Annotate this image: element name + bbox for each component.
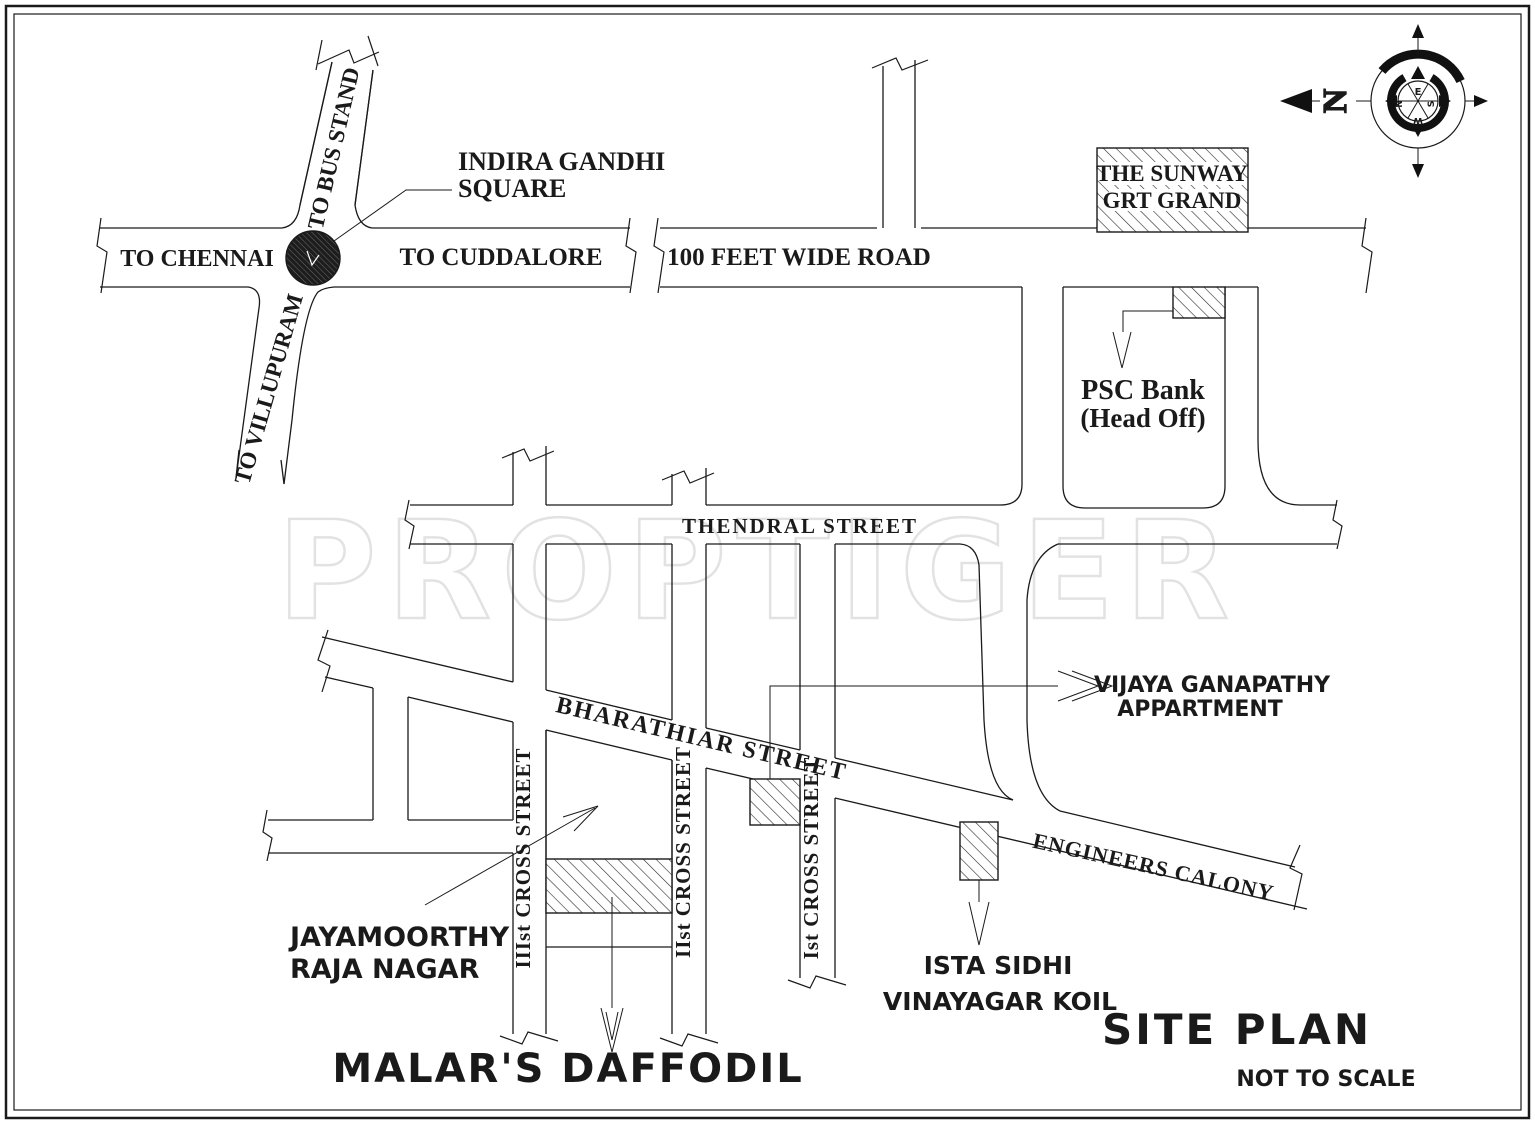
title-block: SITE PLAN NOT TO SCALE	[1102, 1005, 1416, 1092]
road-break-icon	[1290, 845, 1302, 910]
label-thendral-street: THENDRAL STREET	[682, 514, 918, 538]
road-break-icon	[1362, 218, 1372, 293]
vijaya-marker	[750, 779, 800, 825]
compass-north-letter: N	[1317, 88, 1354, 113]
label-to-chennai: TO CHENNAI	[120, 246, 274, 272]
road-break-icon	[318, 50, 379, 64]
north-stub-road	[872, 58, 928, 228]
left-side-roads	[263, 688, 513, 861]
bus-stand-road: TO BUS STAND	[300, 36, 379, 232]
road-break-icon	[872, 58, 928, 70]
vijaya-ganapathy: VIJAYA GANAPATHY APPARTMENT	[750, 671, 1331, 825]
sunway-grt-grand: THE SUNWAY GRT GRAND	[1096, 148, 1248, 232]
label-indira-square: SQUARE	[458, 174, 566, 203]
label-jaya-2: RAJA NAGAR	[290, 954, 480, 985]
psc-bank-block: PSC Bank (Head Off)	[1000, 287, 1337, 508]
site-plan-page: PROPTIGER TO CHENNAI TO CUDDALORE 100 FE…	[0, 0, 1535, 1124]
label-psc-bank-2: (Head Off)	[1080, 403, 1205, 433]
ista-marker	[960, 822, 998, 880]
road-break-icon	[97, 218, 107, 293]
compass-north-small-letter: N	[1395, 100, 1405, 108]
label-cross-street-3: IIIst CROSS STREET	[511, 747, 535, 968]
roundabout-icon	[286, 231, 340, 285]
label-vijaya-1: VIJAYA GANAPATHY	[1094, 673, 1331, 698]
label-not-to-scale: NOT TO SCALE	[1236, 1067, 1415, 1092]
label-cross-street-1: Ist CROSS STREET	[799, 757, 823, 960]
site-marker	[546, 859, 672, 913]
label-to-cuddalore: TO CUDDALORE	[399, 244, 602, 271]
label-sunway-1: THE SUNWAY	[1096, 161, 1248, 186]
label-jaya-1: JAYAMOORTHY	[288, 922, 510, 953]
label-to-villupuram: TO VILLUPURAM	[230, 291, 308, 487]
road-break-icon	[654, 218, 664, 293]
site-block: MALAR'S DAFFODIL	[332, 730, 803, 1092]
road-break-icon	[1333, 500, 1342, 549]
compass-south-small-letter: S	[1427, 101, 1437, 107]
label-engineers-calony: ENGINEERS CALONY	[1031, 828, 1277, 906]
site-plan-map: PROPTIGER TO CHENNAI TO CUDDALORE 100 FE…	[0, 0, 1535, 1124]
psc-bank-marker	[1173, 287, 1225, 318]
label-psc-bank-1: PSC Bank	[1081, 375, 1205, 406]
compass-west-letter: W	[1413, 115, 1423, 125]
compass-rose-icon: N E W N S	[1280, 24, 1488, 178]
label-ista-1: ISTA SIDHI	[924, 951, 1073, 980]
label-vijaya-2: APPARTMENT	[1117, 697, 1283, 722]
label-100-feet-road: 100 FEET WIDE ROAD	[667, 244, 931, 271]
label-malars-daffodil: MALAR'S DAFFODIL	[332, 1046, 803, 1092]
compass-east-letter: E	[1415, 87, 1422, 98]
label-indira-gandhi: INDIRA GANDHI	[458, 147, 665, 176]
road-break-icon	[500, 1032, 558, 1044]
road-break-icon	[788, 976, 846, 988]
road-break-icon	[660, 1034, 718, 1046]
label-ista-2: VINAYAGAR KOIL	[883, 987, 1117, 1016]
label-bharathiar-street: BHARATHIAR STREET	[553, 692, 849, 786]
label-cross-street-2: IIst CROSS STREET	[671, 746, 695, 958]
villupuram-road: TO VILLUPURAM	[230, 291, 308, 487]
down-arrow-icon	[1113, 332, 1131, 368]
label-sunway-2: GRT GRAND	[1103, 188, 1242, 213]
down-arrow-icon	[969, 902, 989, 945]
label-site-plan: SITE PLAN	[1102, 1005, 1372, 1054]
road-break-icon	[626, 218, 636, 293]
